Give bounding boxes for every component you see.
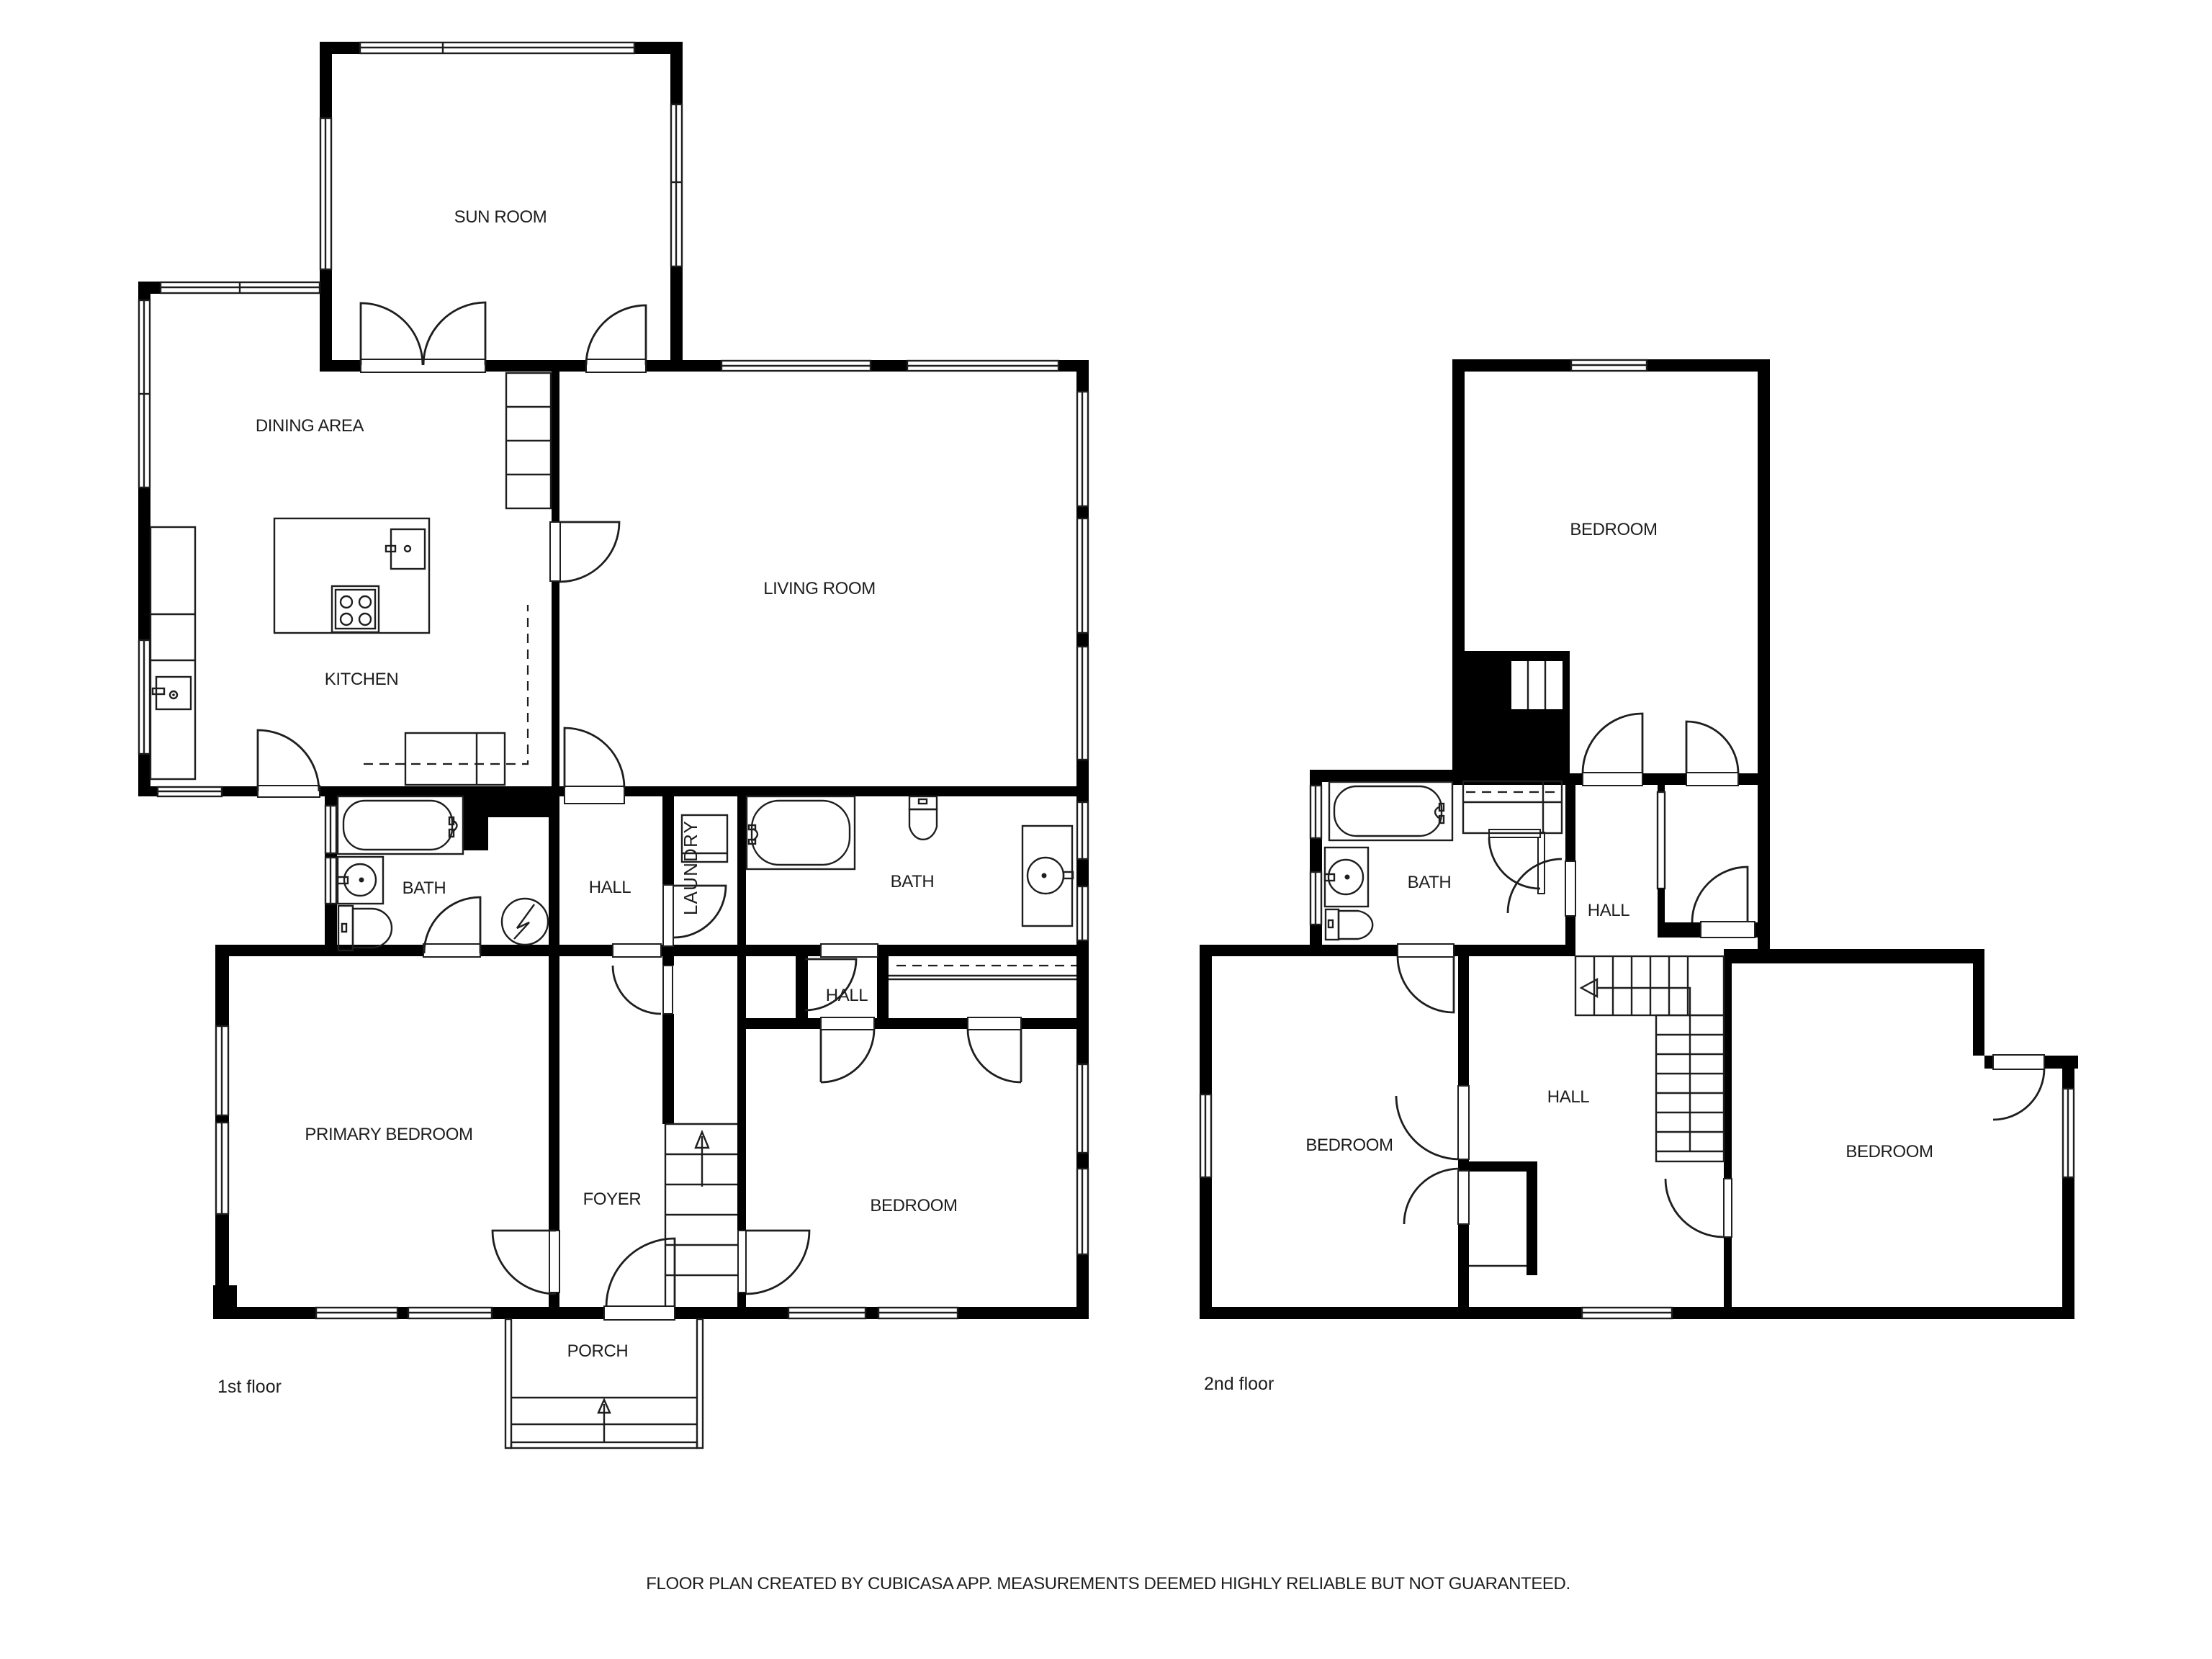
svg-text:DINING AREA: DINING AREA [256, 416, 364, 436]
svg-text:BEDROOM: BEDROOM [1305, 1136, 1393, 1155]
svg-text:KITCHEN: KITCHEN [325, 670, 399, 689]
svg-text:HALL: HALL [589, 878, 631, 897]
svg-text:PORCH: PORCH [567, 1341, 629, 1361]
svg-text:BEDROOM: BEDROOM [870, 1196, 957, 1215]
svg-text:1st floor: 1st floor [217, 1377, 282, 1397]
svg-text:BATH: BATH [891, 872, 935, 891]
svg-text:SUN ROOM: SUN ROOM [454, 207, 547, 227]
svg-text:FLOOR PLAN CREATED BY CUBICASA: FLOOR PLAN CREATED BY CUBICASA APP. MEAS… [646, 1574, 1570, 1593]
svg-text:BEDROOM: BEDROOM [1845, 1142, 1933, 1161]
svg-text:2nd floor: 2nd floor [1204, 1374, 1274, 1394]
svg-text:FOYER: FOYER [583, 1190, 642, 1209]
svg-text:LAUNDRY: LAUNDRY [680, 820, 701, 915]
svg-text:BATH: BATH [1408, 873, 1452, 892]
svg-text:HALL: HALL [826, 986, 868, 1005]
svg-text:LIVING ROOM: LIVING ROOM [763, 579, 876, 598]
svg-text:BEDROOM: BEDROOM [1570, 520, 1657, 539]
svg-text:HALL: HALL [1547, 1087, 1589, 1107]
svg-text:PRIMARY BEDROOM: PRIMARY BEDROOM [305, 1125, 472, 1144]
svg-text:HALL: HALL [1588, 901, 1629, 920]
svg-text:BATH: BATH [403, 878, 446, 898]
